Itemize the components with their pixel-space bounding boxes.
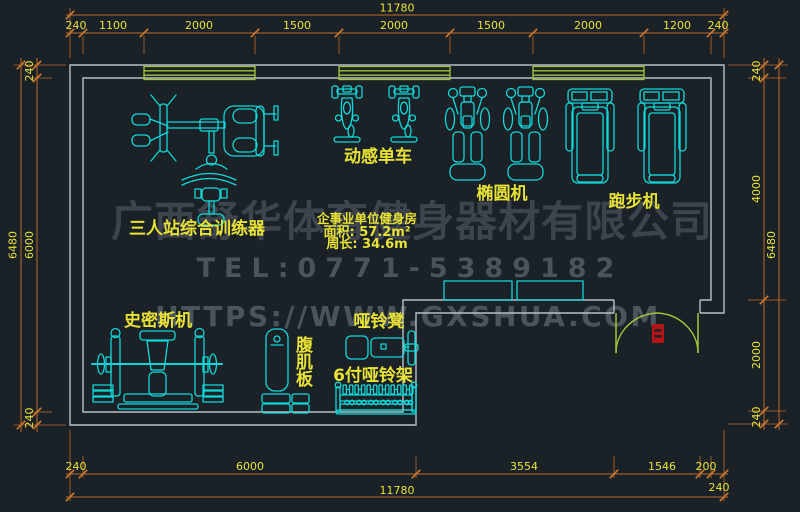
dim-top-overall: 11780 [380,2,415,15]
dim-top-seg: 2000 [380,19,408,32]
dim-top-seg: 1500 [283,19,311,32]
dim-right-seg: 2000 [750,341,763,369]
dim-right-seg: 240 [750,407,763,428]
label-dumbbell-rack: 6付哑铃架 [333,365,413,386]
watermark-url: HTTPS://WWW.GXSHUA.COM [155,300,661,333]
dim-left-seg: 6000 [23,231,36,259]
door-marker-slit [655,329,662,332]
room-perimeter: 周长: 34.6m [326,236,407,252]
dim-right-overall: 6480 [765,231,778,259]
dim-top-seg: 1500 [477,19,505,32]
label-dumbbell-bench: 哑铃凳 [354,311,406,332]
door-marker-icon [652,324,664,343]
dim-top-seg: 1200 [663,19,691,32]
dim-left-seg: 240 [23,61,36,82]
room-title: 企事业单位健身房 [316,211,417,226]
floorplan-drawing: 广西舒华体育健身器材有限公司 TEL:0771-5389182 HTTPS://… [0,0,800,512]
dim-top-seg: 2000 [185,19,213,32]
label-ab-board: 腹肌板 [292,335,313,388]
dim-bottom-seg: 1546 [648,460,676,473]
dim-left-overall: 6480 [7,231,20,259]
dim-right-seg: 4000 [750,175,763,203]
watermark-tel: TEL:0771-5389182 [197,253,624,284]
label-spin-bike: 动感单车 [344,146,412,167]
dim-top-seg: 240 [66,19,87,32]
dim-top-seg: 1100 [99,19,127,32]
dim-bottom-seg: 6000 [236,460,264,473]
dim-top-seg: 2000 [574,19,602,32]
dim-bottom-seg: 200 [696,460,717,473]
dim-bottom-seg: 3554 [510,460,538,473]
label-elliptical: 椭圆机 [477,183,528,204]
dim-right-seg: 240 [750,61,763,82]
cad-floorplan-canvas: 广西舒华体育健身器材有限公司 TEL:0771-5389182 HTTPS://… [0,0,800,512]
dim-top-seg: 240 [708,19,729,32]
label-treadmill: 跑步机 [609,191,660,212]
dim-bottom-seg: 240 [66,460,87,473]
door-marker-slit [655,335,662,338]
label-smith: 史密斯机 [124,310,192,331]
dim-bottom-offset: 240 [709,481,730,494]
label-multi-station: 三人站综合训练器 [129,218,266,239]
room-info: 企事业单位健身房 面积: 57.2m² 周长: 34.6m [316,211,417,252]
dim-bottom-overall: 11780 [380,484,415,497]
dim-left-seg: 240 [23,408,36,429]
